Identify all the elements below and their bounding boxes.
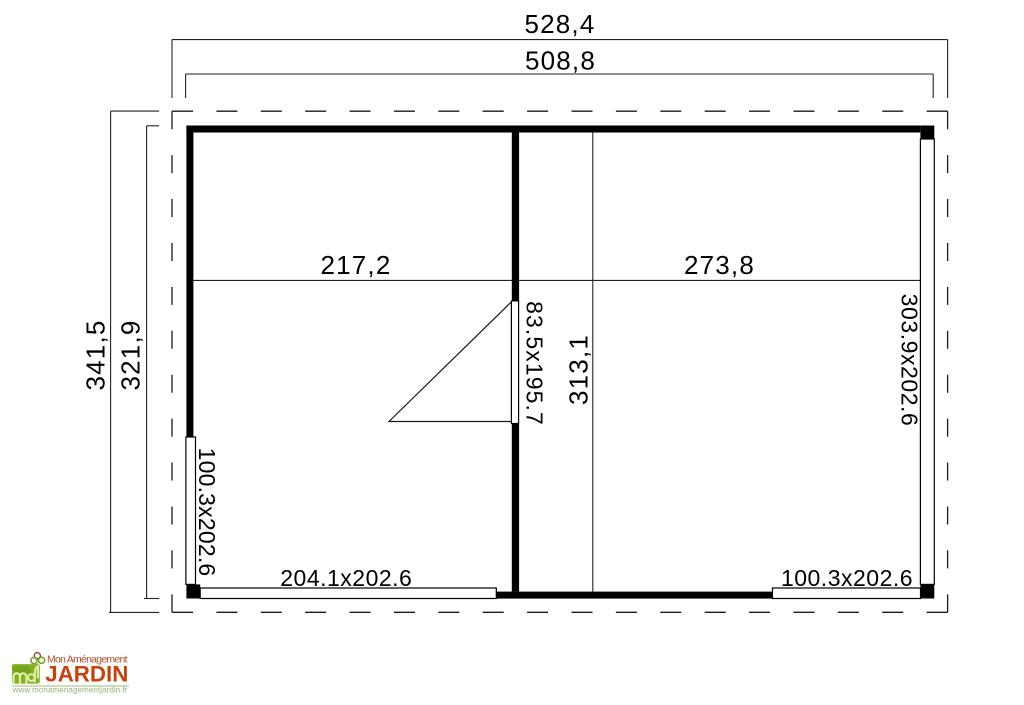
svg-text:100.3x202.6: 100.3x202.6 [194, 448, 220, 577]
svg-text:217,2: 217,2 [320, 250, 391, 280]
svg-text:508,8: 508,8 [525, 46, 596, 76]
svg-text:528,4: 528,4 [524, 9, 595, 39]
svg-text:321,9: 321,9 [115, 319, 145, 390]
svg-text:JARDIN: JARDIN [45, 662, 128, 687]
svg-text:100.3x202.6: 100.3x202.6 [781, 565, 913, 591]
svg-text:www.monamenagementjardin.fr: www.monamenagementjardin.fr [12, 685, 128, 695]
svg-text:313,1: 313,1 [564, 334, 594, 405]
svg-text:341,5: 341,5 [81, 319, 111, 390]
svg-text:273,8: 273,8 [684, 250, 755, 280]
svg-text:204.1x202.6: 204.1x202.6 [280, 565, 412, 591]
svg-text:303.9x202.6: 303.9x202.6 [897, 294, 923, 427]
svg-text:83.5x195.7: 83.5x195.7 [522, 301, 548, 426]
